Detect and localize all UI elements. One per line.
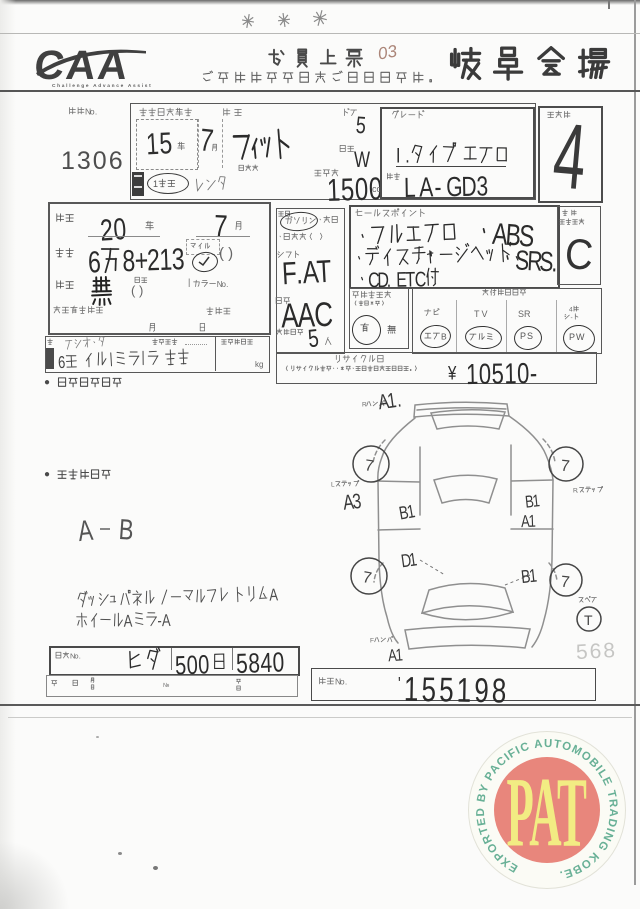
svg-text:.: . xyxy=(226,280,228,289)
svg-text:PAT: PAT xyxy=(506,757,586,868)
svg-text:7: 7 xyxy=(364,457,375,475)
svg-text:0: 0 xyxy=(354,171,369,206)
svg-text:C: C xyxy=(563,229,594,279)
svg-text:CAA: CAA xyxy=(34,42,132,88)
svg-text:F: F xyxy=(370,637,374,644)
svg-text:A: A xyxy=(269,586,279,605)
svg-text:2: 2 xyxy=(146,243,159,277)
svg-text:1: 1 xyxy=(159,243,172,277)
svg-text:7: 7 xyxy=(560,574,571,592)
svg-text:1: 1 xyxy=(145,127,160,161)
svg-text:T: T xyxy=(316,254,332,290)
svg-text:1: 1 xyxy=(532,492,541,512)
svg-text:': ' xyxy=(398,674,401,694)
svg-text:.: . xyxy=(577,487,579,494)
svg-text:A: A xyxy=(77,515,96,548)
svg-text:5: 5 xyxy=(158,126,173,160)
svg-text:8: 8 xyxy=(122,244,135,278)
svg-text:0: 0 xyxy=(272,648,285,679)
svg-text:.: . xyxy=(405,144,409,168)
svg-text:1: 1 xyxy=(528,512,536,531)
svg-text:.: . xyxy=(345,676,347,686)
svg-text:T: T xyxy=(584,612,593,628)
svg-text:3: 3 xyxy=(476,172,491,203)
svg-text:.: . xyxy=(79,651,81,660)
svg-text:7: 7 xyxy=(361,569,373,587)
svg-text:R: R xyxy=(362,401,367,408)
svg-text:L: L xyxy=(404,173,419,204)
svg-text:1: 1 xyxy=(528,566,538,587)
svg-text:1: 1 xyxy=(153,179,158,189)
svg-text:B: B xyxy=(118,514,135,547)
svg-text:-: - xyxy=(434,173,445,204)
svg-text:3: 3 xyxy=(351,489,362,513)
svg-text:5: 5 xyxy=(340,172,355,207)
svg-text:1: 1 xyxy=(408,550,419,571)
svg-text:W: W xyxy=(354,148,370,173)
svg-text:3: 3 xyxy=(171,242,184,276)
svg-text:1: 1 xyxy=(395,646,404,666)
svg-text:Challenge Advance Assist: Challenge Advance Assist xyxy=(52,83,152,89)
svg-text:7: 7 xyxy=(560,458,571,476)
svg-text:L: L xyxy=(331,481,335,488)
svg-text:№: № xyxy=(163,682,169,689)
svg-text:.: . xyxy=(95,106,97,116)
svg-text:6: 6 xyxy=(58,353,66,372)
svg-text:I: I xyxy=(396,144,400,168)
svg-text:1: 1 xyxy=(326,172,341,207)
svg-text:5: 5 xyxy=(307,324,320,353)
svg-text:-: - xyxy=(571,314,573,321)
svg-text:¥: ¥ xyxy=(447,361,456,384)
svg-text:A: A xyxy=(124,612,134,631)
svg-text:A: A xyxy=(162,611,172,630)
svg-text:5: 5 xyxy=(355,113,367,140)
